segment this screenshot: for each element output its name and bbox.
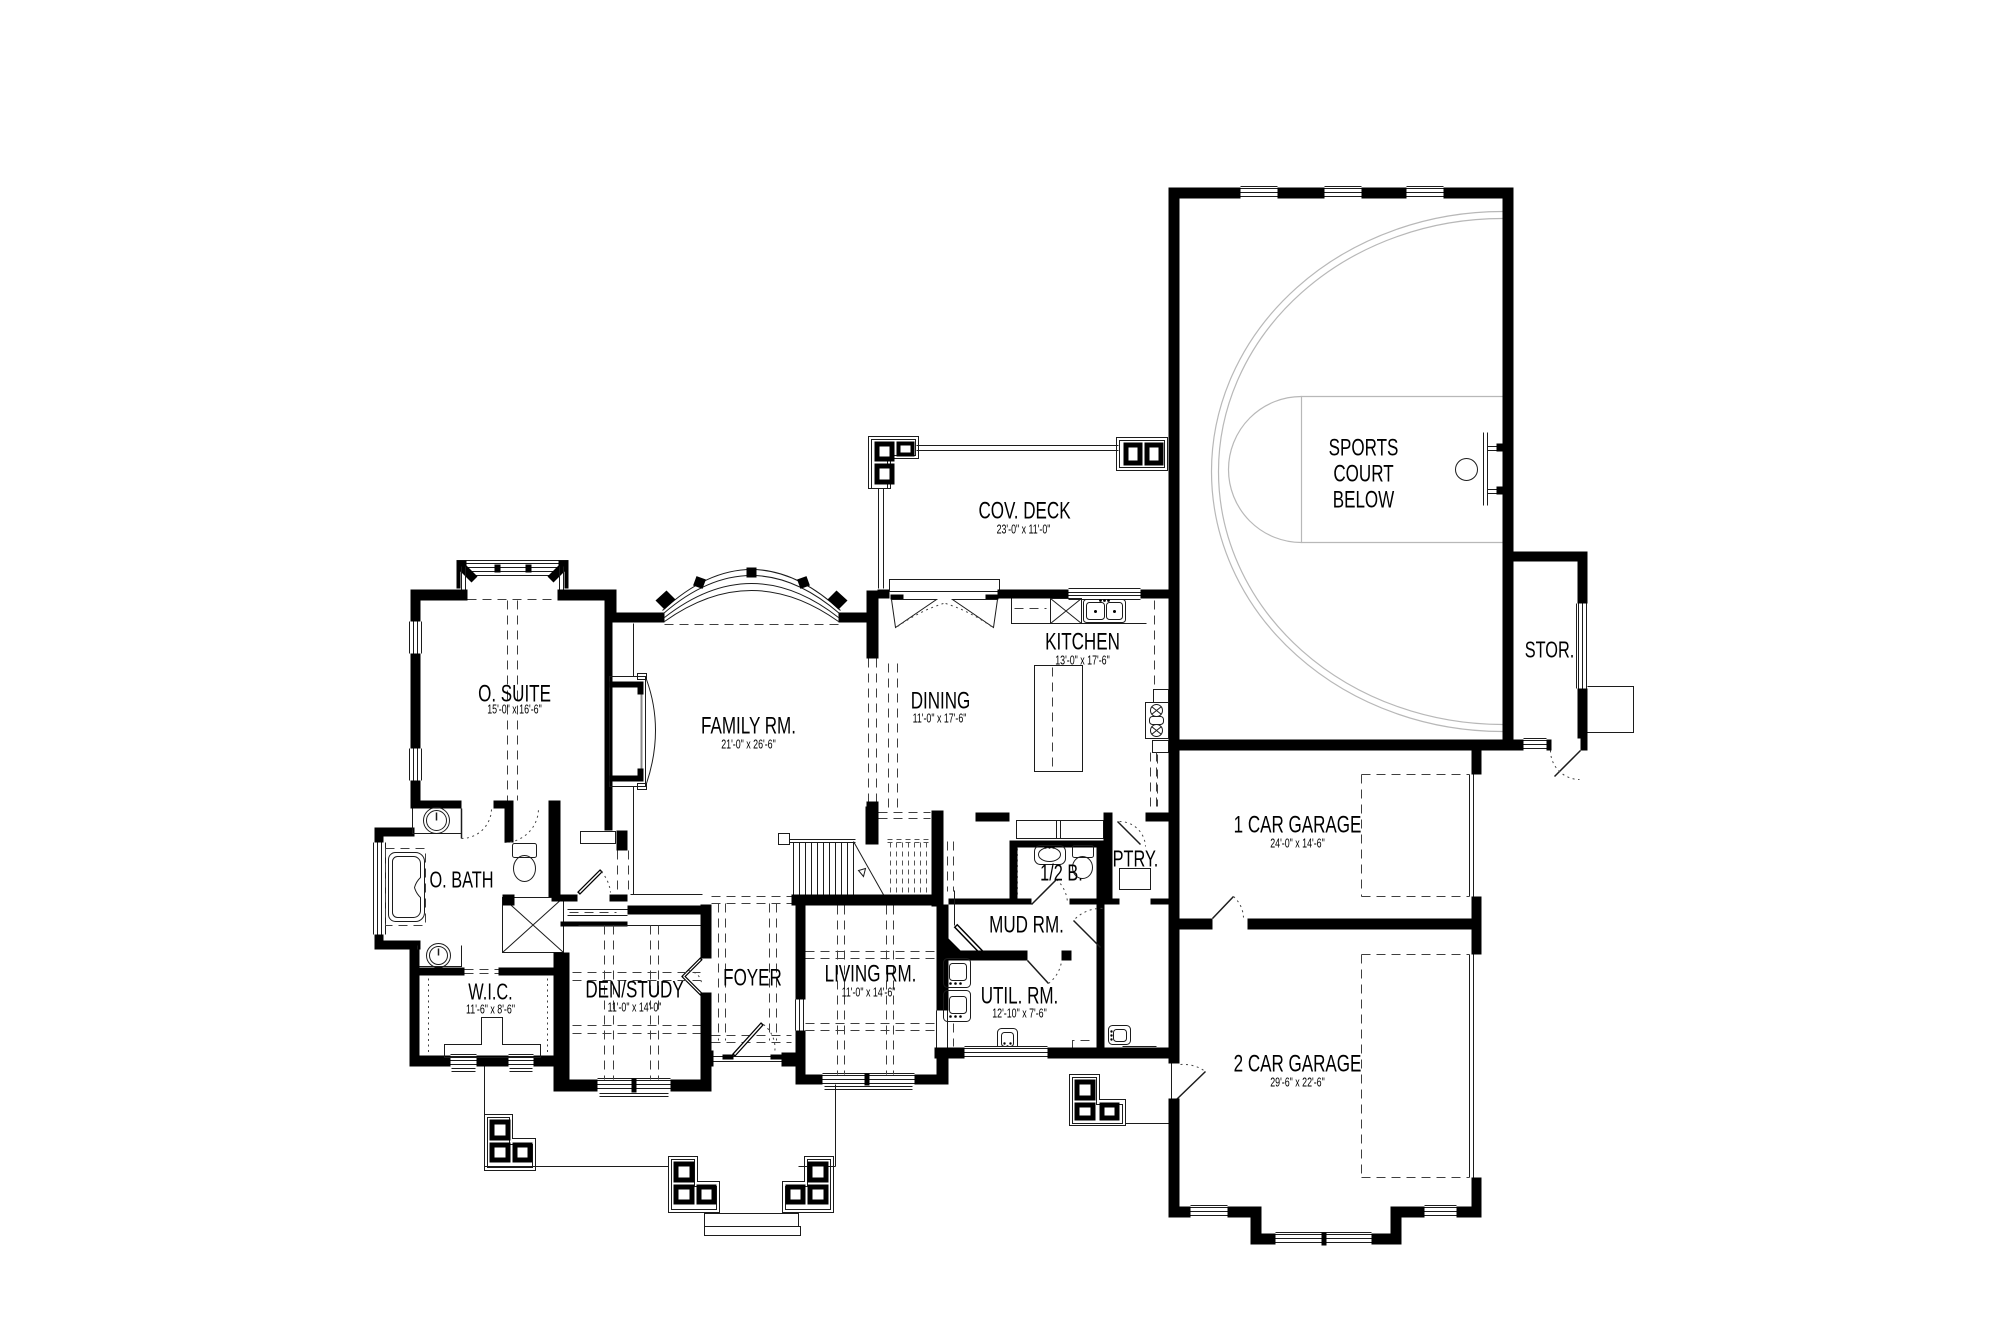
svg-text:13'-0" x 17'-6": 13'-0" x 17'-6" bbox=[1055, 654, 1110, 668]
svg-text:DINING: DINING bbox=[911, 688, 971, 715]
svg-text:FOYER: FOYER bbox=[723, 965, 782, 992]
svg-text:KITCHEN: KITCHEN bbox=[1045, 629, 1120, 656]
svg-text:BELOW: BELOW bbox=[1333, 487, 1395, 514]
svg-text:29'-6" x 22'-6": 29'-6" x 22'-6" bbox=[1270, 1076, 1325, 1090]
svg-text:23'-0" x 11'-0": 23'-0" x 11'-0" bbox=[997, 523, 1051, 537]
svg-text:11'-0" x 17'-6": 11'-0" x 17'-6" bbox=[913, 712, 967, 726]
svg-text:2 CAR GARAGE: 2 CAR GARAGE bbox=[1234, 1051, 1362, 1078]
svg-text:COV. DECK: COV. DECK bbox=[978, 498, 1070, 525]
svg-text:1/2 B.: 1/2 B. bbox=[1040, 861, 1083, 886]
svg-text:MUD RM.: MUD RM. bbox=[989, 912, 1064, 939]
svg-text:24'-0" x 14'-6": 24'-0" x 14'-6" bbox=[1270, 837, 1325, 851]
svg-text:LIVING RM.: LIVING RM. bbox=[825, 961, 917, 988]
svg-text:PTRY.: PTRY. bbox=[1113, 847, 1159, 872]
svg-text:STOR.: STOR. bbox=[1525, 638, 1575, 663]
svg-text:12'-10" x 7'-6": 12'-10" x 7'-6" bbox=[992, 1007, 1047, 1021]
svg-text:UTIL. RM.: UTIL. RM. bbox=[981, 983, 1059, 1010]
svg-text:FAMILY RM.: FAMILY RM. bbox=[701, 713, 796, 740]
svg-text:SPORTS: SPORTS bbox=[1329, 435, 1399, 462]
svg-text:COURT: COURT bbox=[1333, 461, 1393, 488]
svg-text:21'-0" x 26'-6": 21'-0" x 26'-6" bbox=[721, 738, 776, 752]
svg-text:O. BATH: O. BATH bbox=[429, 868, 493, 893]
svg-text:1 CAR GARAGE: 1 CAR GARAGE bbox=[1234, 812, 1362, 839]
svg-text:11'-0" x 14'-6": 11'-0" x 14'-6" bbox=[842, 986, 896, 1000]
svg-text:15'-0" x 16'-6": 15'-0" x 16'-6" bbox=[487, 703, 542, 717]
svg-text:11'-0" x 14'-0": 11'-0" x 14'-0" bbox=[608, 1001, 662, 1015]
svg-text:DEN/STUDY: DEN/STUDY bbox=[585, 977, 683, 1004]
svg-text:11'-6" x 8'-6": 11'-6" x 8'-6" bbox=[466, 1003, 515, 1017]
svg-text:W.I.C.: W.I.C. bbox=[468, 980, 512, 1005]
